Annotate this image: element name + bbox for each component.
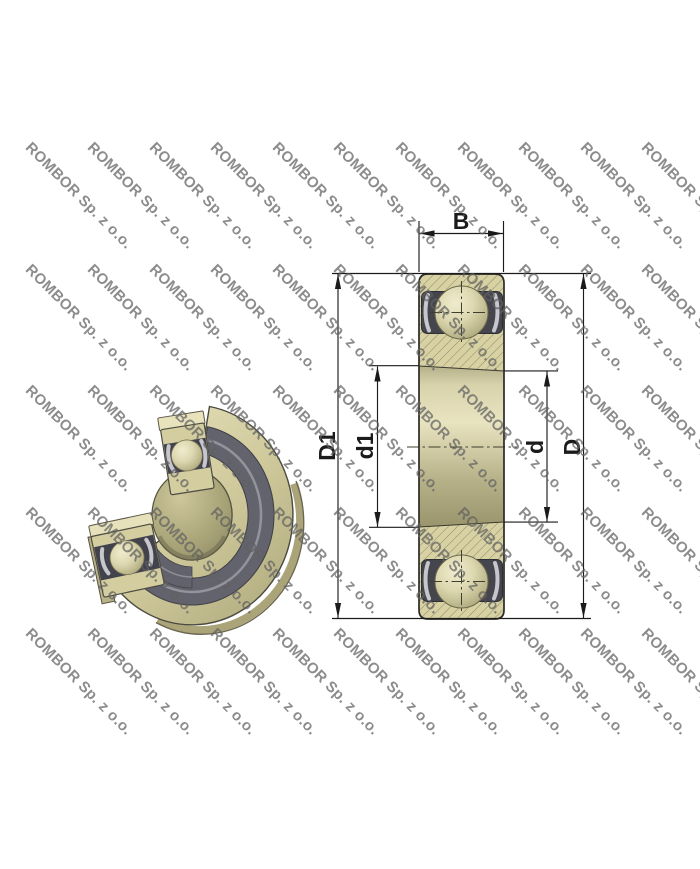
- arrow-D1-bottom: [335, 603, 341, 618]
- arrow-D-bottom: [580, 603, 586, 618]
- bottom-ring-section: [419, 522, 504, 619]
- dim-label-D: D: [559, 439, 585, 456]
- bearing-3d-view: [86, 407, 304, 635]
- arrow-d1-top: [374, 367, 380, 382]
- dim-label-d1: d1: [352, 432, 378, 459]
- dim-label-B: B: [453, 208, 470, 234]
- dim-label-D1: D1: [314, 431, 340, 461]
- arrow-d1-bottom: [374, 512, 380, 527]
- arrow-D-top: [580, 274, 586, 289]
- arrow-d-top: [544, 372, 550, 387]
- bearing-drawing-page: B D1 d1 d D ROMBOR Sp. z o.o.ROMBOR Sp. …: [0, 0, 700, 869]
- arrow-B-left: [420, 230, 435, 236]
- bearing-section-view: B D1 d1 d D: [314, 208, 591, 619]
- top-ring-section: [419, 274, 504, 371]
- bearing-figure: B D1 d1 d D: [0, 0, 700, 869]
- dim-label-d: d: [522, 440, 548, 454]
- arrow-d-bottom: [544, 507, 550, 522]
- arrow-D1-top: [335, 274, 341, 289]
- arrow-B-right: [488, 230, 503, 236]
